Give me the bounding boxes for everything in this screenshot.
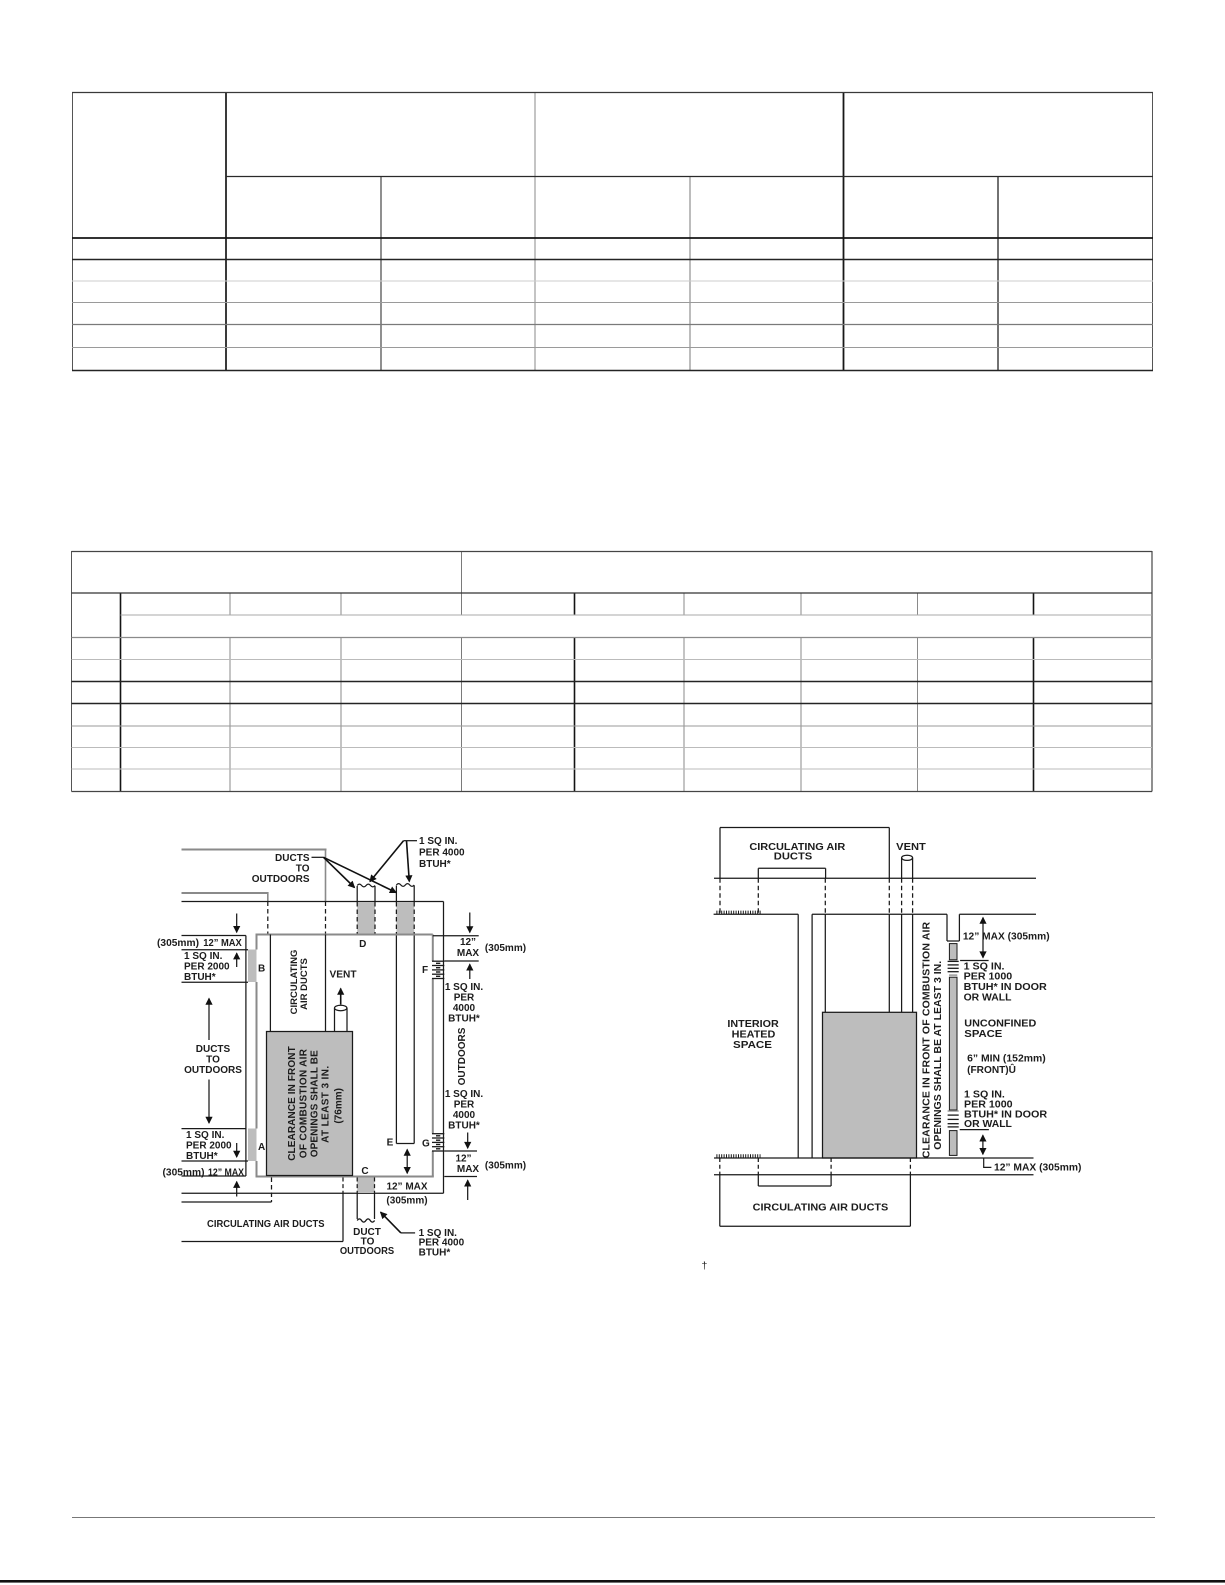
svg-text:OUTDOORS: OUTDOORS [184,1065,242,1076]
svg-text:BTUH*: BTUH* [184,972,216,983]
svg-text:†: † [702,1260,708,1272]
svg-text:G: G [422,1139,430,1150]
svg-text:VENT: VENT [330,970,357,981]
svg-text:OUTDOORS: OUTDOORS [340,1246,395,1257]
svg-text:12” MAX: 12” MAX [203,938,242,949]
svg-text:BTUH*: BTUH* [448,1014,480,1025]
svg-text:1 SQ IN.: 1 SQ IN. [445,982,484,993]
svg-text:OF COMBUSTION AIR: OF COMBUSTION AIR [299,1048,310,1158]
svg-text:12” MAX (305mm): 12” MAX (305mm) [994,1162,1081,1174]
svg-text:PER: PER [454,1100,475,1111]
svg-text:BTUH*: BTUH* [419,1247,451,1258]
svg-text:1 SQ IN.: 1 SQ IN. [186,1130,225,1141]
svg-text:12” MAX: 12” MAX [386,1182,427,1193]
svg-text:(305mm): (305mm) [157,938,199,949]
svg-text:C: C [361,1166,368,1177]
svg-text:12”: 12” [460,937,476,948]
svg-text:4000: 4000 [453,1003,476,1014]
svg-text:AT LEAST 3 IN.: AT LEAST 3 IN. [321,1066,332,1143]
svg-text:1 SQ IN.: 1 SQ IN. [445,1089,484,1100]
svg-text:OPENINGS SHALL BE AT LEAST 3 I: OPENINGS SHALL BE AT LEAST 3 IN. [932,961,944,1150]
svg-text:(305mm): (305mm) [163,1168,205,1179]
svg-text:F: F [422,965,428,976]
svg-text:A: A [258,1142,265,1153]
svg-text:PER 4000: PER 4000 [419,848,465,859]
svg-text:DUCTS: DUCTS [774,851,813,863]
svg-text:OUTDOORS: OUTDOORS [252,874,310,885]
svg-text:12” MAX: 12” MAX [208,1168,244,1179]
svg-text:(FRONT)Û: (FRONT)Û [967,1063,1016,1076]
svg-text:12” MAX (305mm): 12” MAX (305mm) [963,931,1050,943]
svg-text:TO: TO [296,864,310,875]
svg-text:(305mm): (305mm) [386,1196,427,1207]
svg-text:MAX: MAX [457,1164,480,1175]
svg-text:6” MIN (152mm): 6” MIN (152mm) [967,1053,1046,1065]
svg-text:CLEARANCE IN FRONT: CLEARANCE IN FRONT [287,1046,298,1161]
svg-text:AIR DUCTS: AIR DUCTS [299,958,310,1010]
svg-text:CIRCULATING AIR DUCTS: CIRCULATING AIR DUCTS [753,1202,889,1214]
svg-text:SPACE: SPACE [733,1039,772,1051]
svg-text:E: E [387,1138,394,1149]
svg-text:1 SQ IN.: 1 SQ IN. [184,951,223,962]
svg-text:B: B [258,964,265,975]
svg-text:PER 2000: PER 2000 [186,1141,232,1152]
svg-text:OR WALL: OR WALL [964,991,1012,1003]
svg-text:4000: 4000 [453,1110,476,1121]
svg-text:DUCTS: DUCTS [196,1044,231,1055]
svg-text:VENT: VENT [896,841,926,853]
svg-text:MAX: MAX [457,948,480,959]
svg-text:(76mm): (76mm) [333,1088,344,1124]
svg-text:PER 2000: PER 2000 [184,962,230,973]
svg-text:12”: 12” [455,1154,471,1165]
svg-text:OR WALL: OR WALL [964,1118,1012,1130]
svg-text:BTUH*: BTUH* [419,859,451,870]
svg-text:BTUH*: BTUH* [448,1121,480,1132]
svg-text:PER: PER [454,993,475,1004]
svg-text:BTUH*: BTUH* [186,1151,218,1162]
svg-text:D: D [359,939,366,950]
svg-text:OPENINGS SHALL BE: OPENINGS SHALL BE [309,1050,320,1157]
svg-text:CLEARANCE IN FRONT OF COMBUSTI: CLEARANCE IN FRONT OF COMBUSTION AIR [920,921,932,1158]
svg-text:1 SQ IN.: 1 SQ IN. [419,836,458,847]
svg-text:TO: TO [206,1055,220,1066]
svg-text:DUCTS: DUCTS [275,853,310,864]
svg-text:(305mm): (305mm) [485,1161,526,1172]
svg-text:OUTDOORS: OUTDOORS [457,1027,468,1085]
svg-text:CIRCULATING AIR DUCTS: CIRCULATING AIR DUCTS [207,1219,325,1230]
svg-text:(305mm): (305mm) [485,943,526,954]
svg-text:SPACE: SPACE [964,1028,1002,1040]
